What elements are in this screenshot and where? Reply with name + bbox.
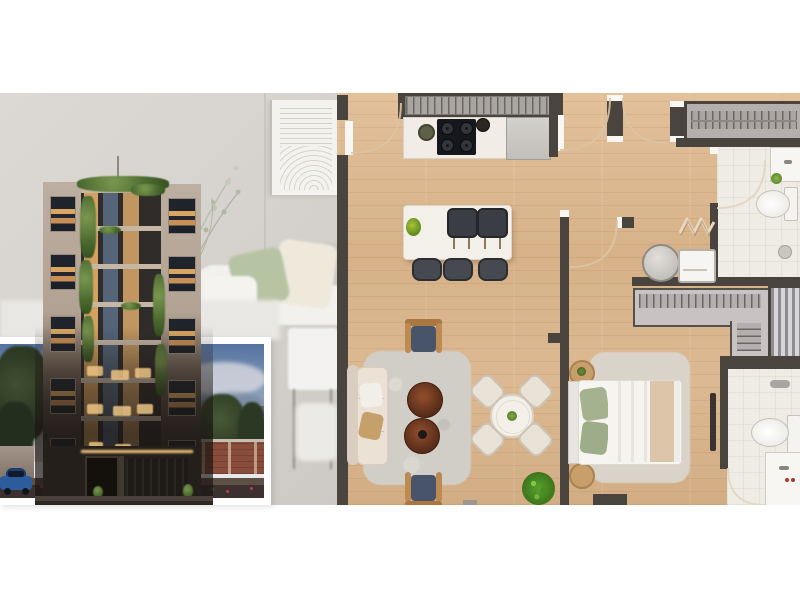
faucet (779, 466, 789, 470)
tower-window (50, 196, 76, 232)
armchair-cushion (411, 475, 436, 501)
shower-drain (778, 245, 792, 259)
wardrobe-striped (768, 285, 800, 363)
burner (460, 122, 473, 135)
garage-door (126, 458, 188, 498)
tower-window (168, 256, 196, 292)
faucet (784, 160, 792, 164)
island-bar-tray (447, 208, 478, 238)
bar-stool (412, 258, 442, 281)
lit-window (87, 404, 103, 414)
led-strip (81, 450, 193, 453)
armchair-arm (436, 323, 442, 353)
dish-rack (405, 96, 557, 115)
jamb-cap (710, 147, 718, 154)
line-art-panel (270, 100, 339, 195)
hanger-ticks (737, 323, 761, 351)
armchair (405, 470, 442, 505)
kitchen-sink (418, 124, 435, 141)
jamb-cap (560, 210, 569, 217)
pillow-sage (579, 386, 610, 421)
nightstand (569, 463, 595, 489)
armchair-back (405, 501, 442, 505)
lit-window (135, 368, 151, 378)
lit-window (111, 370, 129, 380)
ground-floor (43, 446, 201, 499)
rooftop-greenery (131, 184, 165, 196)
west-wall-upper (337, 95, 348, 120)
pillow-sage (579, 420, 610, 455)
toilet2-bowl (751, 418, 789, 447)
sofa (347, 365, 388, 465)
bathroom2-west-wall (720, 369, 728, 469)
duvet-folds (608, 381, 656, 462)
floor-plan (337, 93, 800, 505)
lit-window (113, 406, 131, 416)
bedroom-north-stub (548, 333, 569, 343)
toilet2-tank (787, 415, 800, 455)
refrigerator (506, 117, 551, 160)
potted-plant (522, 472, 555, 505)
vertical-garden (79, 260, 93, 314)
toilet1-bowl (756, 190, 790, 218)
tap-cold (791, 478, 795, 482)
tap-hot (785, 478, 789, 482)
vertical-garden (80, 196, 96, 258)
bathroom2-vanity (765, 452, 800, 505)
hanger-rail (691, 120, 797, 122)
lit-window (87, 366, 103, 376)
island-plant (406, 218, 421, 236)
blanket-band (650, 381, 676, 462)
building-render (35, 156, 213, 505)
balcony-planter (121, 302, 141, 310)
jamb-cap (670, 101, 684, 107)
kettle (476, 118, 490, 132)
blurred-chair (296, 403, 338, 461)
hanger-ticks (639, 294, 761, 308)
table-leg (293, 389, 295, 469)
tower-window (168, 198, 196, 234)
armchair (405, 319, 442, 357)
lit-window (137, 404, 153, 414)
coffee-table (404, 418, 440, 454)
panel-arcs (280, 146, 332, 190)
blurred-side-table (288, 328, 338, 390)
jamb-cap (607, 136, 623, 142)
armchair-cushion (411, 326, 436, 352)
jamb-cap (607, 95, 623, 101)
entry-door-leaf (345, 121, 353, 155)
panel-lines (280, 106, 332, 144)
vase (418, 430, 427, 439)
bedroom-south-stub (593, 494, 627, 505)
laundry-basket (642, 244, 680, 282)
cabinet-line (683, 269, 707, 271)
duvet-foot (674, 381, 680, 462)
burner (441, 139, 454, 152)
door-leaf (558, 115, 564, 151)
bar-stool (443, 258, 473, 281)
wall-under-wardrobe (676, 138, 800, 147)
laundry-cabinet (678, 249, 716, 283)
burner (460, 139, 473, 152)
bar-stool (478, 258, 508, 281)
nightstand-plant (577, 367, 586, 376)
island-bar-tray (477, 208, 508, 238)
threshold-stub (463, 500, 477, 505)
coffee-table (407, 382, 443, 418)
entrance-column (119, 456, 124, 498)
burner (441, 122, 454, 135)
bed (568, 380, 680, 463)
closet-south-wall (720, 356, 800, 369)
vanity-plant (771, 173, 782, 184)
kitchen-wall-right (549, 93, 558, 157)
open-door-leaf (710, 393, 716, 451)
balcony-planter (99, 226, 121, 234)
armchair-arm (436, 472, 442, 502)
closet-l-vertical (730, 321, 771, 359)
hall-wall-stub (607, 95, 623, 142)
towel-bar (770, 380, 790, 388)
sofa-pillow-white (359, 382, 383, 408)
jamb-cap (617, 217, 622, 228)
tower-window (50, 254, 76, 290)
cooktop (437, 119, 476, 155)
composite-image (0, 0, 800, 600)
centerpiece-plant (507, 411, 517, 421)
street-edge (35, 501, 213, 505)
